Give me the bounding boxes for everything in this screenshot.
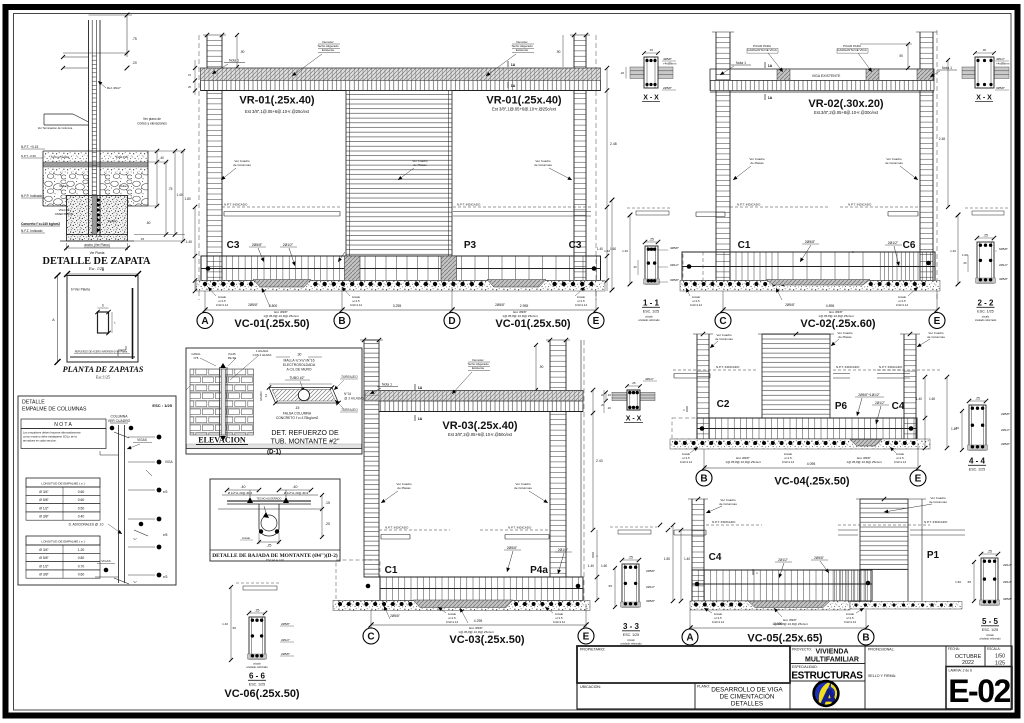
- svg-text:2Ø5/8"+1Ø1/2": 2Ø5/8"+1Ø1/2": [858, 393, 880, 397]
- svg-text:C6: C6: [903, 240, 916, 251]
- svg-text:.25: .25: [649, 238, 654, 242]
- svg-text:C/H=1.12: C/H=1.12: [894, 460, 907, 464]
- svg-text:1/25: 1/25: [995, 661, 1005, 667]
- svg-text:CON 2 HLDAS: CON 2 HLDAS: [253, 353, 272, 357]
- svg-text:VIGA: VIGA: [165, 460, 173, 464]
- svg-text:ELECTROSOLDADA: ELECTROSOLDADA: [283, 363, 316, 367]
- svg-text:D. ADICIONALES @ .10: D. ADICIONALES @ .10: [69, 523, 104, 527]
- svg-text:Existente: Existente: [472, 366, 485, 370]
- svg-text:EMPALME DE COLUMNAS: EMPALME DE COLUMNAS: [22, 407, 87, 413]
- svg-text:N.P.T. INDICADO: N.P.T. INDICADO: [737, 203, 761, 207]
- svg-text:Relleno: Relleno: [119, 184, 129, 188]
- svg-text:3Ø5/8": 3Ø5/8": [996, 86, 1005, 90]
- svg-text:Ø 1/2"x1.20@.40ml: Ø 1/2"x1.20@.40ml: [284, 491, 309, 495]
- svg-text:VC-01(.25x.50): VC-01(.25x.50): [234, 318, 310, 330]
- svg-text:C1: C1: [738, 240, 751, 251]
- svg-text:X - X: X - X: [626, 416, 642, 423]
- svg-text:t: t: [115, 321, 116, 325]
- svg-text:2022: 2022: [962, 660, 974, 666]
- svg-text:C3: C3: [227, 240, 240, 251]
- svg-text:"e": "e": [133, 580, 137, 584]
- svg-text:B: B: [862, 633, 869, 644]
- svg-text:N.P.T. -0.60: N.P.T. -0.60: [21, 154, 36, 158]
- svg-text:1A: 1A: [511, 63, 516, 67]
- svg-text:de Columnas: de Columnas: [534, 163, 552, 167]
- svg-text:@ 3 HILADAS: @ 3 HILADAS: [344, 397, 365, 401]
- svg-text:0.80: 0.80: [78, 556, 85, 560]
- svg-text:Falso Piso: Falso Piso: [116, 155, 129, 159]
- svg-text:2Ø5/8": 2Ø5/8": [663, 86, 672, 90]
- svg-text:PLANTA DE ZAPATAS: PLANTA DE ZAPATAS: [63, 365, 144, 374]
- svg-text:0.70: 0.70: [78, 564, 85, 568]
- svg-text:Relleno: Relleno: [59, 184, 69, 188]
- svg-text:1.40: 1.40: [177, 193, 183, 197]
- svg-text:.20: .20: [607, 393, 611, 397]
- svg-text:Zapata: Zapata: [108, 219, 117, 223]
- svg-text:+4xØ8mm: +4xØ8mm: [996, 62, 1010, 66]
- svg-text:VR-02(.30x.20): VR-02(.30x.20): [808, 98, 884, 110]
- svg-text:de Columnas: de Columnas: [233, 163, 251, 167]
- svg-text:ELEVACION: ELEVACION: [198, 436, 246, 445]
- svg-text:0.60: 0.60: [78, 490, 85, 494]
- svg-text:DET. REFUERZO DE: DET. REFUERZO DE: [271, 430, 339, 437]
- svg-text:b=Ver Planta: b=Ver Planta: [71, 288, 90, 292]
- svg-text:.30: .30: [297, 353, 302, 357]
- svg-text:2Ø1/2": 2Ø1/2": [1003, 580, 1012, 584]
- svg-text:c/solado reforzado: c/solado reforzado: [979, 637, 1001, 641]
- svg-text:zócalo: zócalo: [627, 638, 635, 642]
- svg-text:C/H=1.12: C/H=1.12: [553, 620, 566, 624]
- svg-text:de Placas: de Placas: [413, 163, 427, 167]
- svg-text:1A: 1A: [418, 386, 423, 390]
- svg-text:DETALLES: DETALLES: [731, 701, 763, 708]
- svg-text:DE CIMENTACIÓN: DE CIMENTACIÓN: [720, 692, 775, 701]
- svg-text:Ø 3/4": Ø 3/4": [39, 548, 49, 552]
- svg-text:0.60: 0.60: [78, 498, 85, 502]
- svg-text:.40: .40: [160, 156, 165, 160]
- svg-text:.20: .20: [325, 522, 330, 526]
- svg-text:0.50: 0.50: [78, 506, 85, 510]
- svg-text:.90: .90: [240, 50, 245, 54]
- svg-text:.25: .25: [267, 544, 272, 548]
- svg-text:VR-01(.25x.40): VR-01(.25x.40): [239, 95, 315, 107]
- svg-text:N.P.T. INDICADO: N.P.T. INDICADO: [712, 520, 736, 524]
- svg-text:.90: .90: [899, 54, 904, 58]
- svg-text:TECHO ALIGERADO: TECHO ALIGERADO: [257, 497, 282, 501]
- svg-text:2Ø5/8": 2Ø5/8": [814, 556, 824, 560]
- svg-text:1 - 1: 1 - 1: [643, 299, 660, 308]
- svg-text:B: B: [338, 316, 345, 327]
- svg-text:de Columnas: de Columnas: [929, 500, 947, 504]
- svg-text:2Ø1/2": 2Ø1/2": [1003, 563, 1012, 567]
- svg-text:2Ø1/2": 2Ø1/2": [281, 638, 290, 642]
- svg-text:de Columnas: de Columnas: [514, 486, 532, 490]
- svg-text:1A: 1A: [768, 64, 773, 68]
- svg-text:2Ø5/8": 2Ø5/8": [1001, 442, 1010, 446]
- svg-text:1.60: 1.60: [929, 397, 935, 401]
- svg-text:2Ø5/8": 2Ø5/8": [248, 303, 258, 307]
- svg-text:VC-02(.25x.60): VC-02(.25x.60): [800, 318, 876, 330]
- svg-text:2Ø5/8": 2Ø5/8": [785, 303, 795, 307]
- svg-text:de Columnas: de Columnas: [885, 161, 903, 165]
- svg-text:ESC. 1/25: ESC. 1/25: [623, 633, 639, 637]
- svg-text:VC-05(.25x.65): VC-05(.25x.65): [747, 633, 823, 645]
- svg-text:4.895: 4.895: [826, 304, 835, 308]
- svg-text:2Ø5/8": 2Ø5/8": [390, 614, 400, 618]
- svg-text:.13: .13: [264, 394, 268, 398]
- svg-text:de Columnas: de Columnas: [927, 335, 945, 339]
- svg-text:TARRAJEO: TARRAJEO: [341, 375, 358, 379]
- svg-text:zócalo: zócalo: [986, 633, 994, 637]
- svg-text:2.955: 2.955: [520, 304, 529, 308]
- svg-text:armadura en cada seccion.: armadura en cada seccion.: [23, 438, 57, 442]
- svg-text:Nota 1: Nota 1: [942, 66, 952, 70]
- svg-text:N.P.T. INDICADO: N.P.T. INDICADO: [457, 203, 481, 207]
- svg-text:N°16: N°16: [344, 392, 351, 396]
- svg-text:VIGAS: VIGAS: [137, 438, 147, 442]
- svg-text:2Ø5/8": 2Ø5/8": [281, 652, 290, 656]
- svg-text:VER CUADRO: VER CUADRO: [108, 419, 131, 423]
- svg-text:2Ø1/2": 2Ø1/2": [670, 263, 679, 267]
- svg-text:2.48: 2.48: [610, 142, 617, 146]
- svg-text:N.F.Z. Indicado: N.F.Z. Indicado: [21, 229, 43, 233]
- svg-text:N.P.T. INDICADO: N.P.T. INDICADO: [508, 526, 532, 530]
- svg-text:.60: .60: [146, 221, 151, 225]
- svg-text:"e": "e": [133, 537, 137, 541]
- svg-text:2Ø1/2": 2Ø1/2": [558, 548, 569, 552]
- svg-text:.25: .25: [631, 381, 636, 385]
- svg-text:.15: .15: [325, 501, 330, 505]
- svg-text:N.F.P. Indicado: N.F.P. Indicado: [21, 194, 42, 198]
- svg-text:PROFESIONAL:: PROFESIONAL:: [868, 648, 895, 652]
- svg-text:3Ø5/8": 3Ø5/8": [646, 599, 655, 603]
- svg-text:VR-01(.25x.40): VR-01(.25x.40): [486, 95, 562, 107]
- svg-text:2Ø5/8": 2Ø5/8": [646, 569, 655, 573]
- svg-text:2Ø5/8": 2Ø5/8": [495, 303, 505, 307]
- svg-text:4Ø1/2": 4Ø1/2": [996, 57, 1005, 61]
- svg-text:N.P.T. INDICADO: N.P.T. INDICADO: [836, 365, 860, 369]
- svg-text:Esc:1/25: Esc:1/25: [96, 375, 110, 380]
- svg-text:Ø 1/2"x1.20@.40ml: Ø 1/2"x1.20@.40ml: [228, 491, 253, 495]
- svg-text:1.40: 1.40: [622, 249, 628, 253]
- svg-text:Ø 5/8": Ø 5/8": [39, 498, 49, 502]
- svg-text:(D-1): (D-1): [267, 449, 281, 456]
- svg-text:C/H=1.12: C/H=1.12: [690, 303, 703, 307]
- svg-text:MURO: MURO: [259, 391, 263, 401]
- svg-text:.60: .60: [955, 426, 960, 430]
- svg-text:C2: C2: [717, 399, 730, 410]
- svg-text:.40: .40: [241, 485, 246, 489]
- svg-text:de Placas: de Placas: [838, 335, 852, 339]
- svg-text:Ø 3/4": Ø 3/4": [39, 490, 49, 494]
- svg-text:A: A: [686, 633, 693, 644]
- svg-text:2Ø1/2": 2Ø1/2": [875, 401, 885, 405]
- svg-text:FALSA COLUMNA: FALSA COLUMNA: [283, 412, 312, 416]
- svg-text:REFUERZO DE ACERO INFERIOR Ø V: REFUERZO DE ACERO INFERIOR Ø Ver Planta: [75, 351, 128, 354]
- svg-text:.65: .65: [967, 580, 972, 584]
- svg-text:C/H=1.12: C/H=1.12: [782, 460, 795, 464]
- svg-text:.15: .15: [295, 406, 300, 410]
- svg-text:N.P.T. INDICADO: N.P.T. INDICADO: [848, 203, 872, 207]
- svg-text:N.P.T. INDICADO: N.P.T. INDICADO: [924, 520, 948, 524]
- svg-text:Existente: Existente: [516, 48, 529, 52]
- svg-text:VC-06(.25x.50): VC-06(.25x.50): [224, 688, 300, 700]
- svg-text:2Ø1/2": 2Ø1/2": [888, 241, 899, 245]
- svg-text:1.40: 1.40: [684, 557, 690, 561]
- svg-text:VC-04(.25x.50): VC-04(.25x.50): [774, 476, 850, 488]
- svg-text:3.800: 3.800: [269, 304, 278, 308]
- svg-text:1.40: 1.40: [222, 622, 228, 626]
- svg-text:.75: .75: [132, 37, 137, 41]
- svg-text:1.40: 1.40: [588, 564, 594, 568]
- svg-text:C/H=1.12: C/H=1.12: [446, 620, 459, 624]
- svg-text:E: E: [593, 316, 600, 327]
- svg-text:Concreto f`c=140 kg/cm2: Concreto f`c=140 kg/cm2: [21, 222, 60, 226]
- svg-text:1.40: 1.40: [916, 397, 922, 401]
- svg-text:b: b: [102, 304, 104, 308]
- svg-text:2Ø1/2": 2Ø1/2": [283, 243, 294, 247]
- svg-text:.60: .60: [963, 261, 967, 265]
- svg-text:LONGITUD DE EMPALME ( e ): LONGITUD DE EMPALME ( e ): [41, 482, 84, 486]
- svg-text:3.405: 3.405: [774, 622, 783, 626]
- svg-text:6Ø5/8": 6Ø5/8": [999, 247, 1008, 251]
- svg-text:de Placas: de Placas: [397, 486, 411, 490]
- svg-text:3Ø5/8": 3Ø5/8": [1003, 597, 1012, 601]
- svg-text:Ø 1/2": Ø 1/2": [39, 564, 49, 568]
- svg-text:P3: P3: [464, 240, 477, 251]
- svg-text:4.295: 4.295: [474, 619, 483, 623]
- svg-text:2Ø5/8": 2Ø5/8": [507, 546, 518, 550]
- svg-text:Existente: Existente: [322, 48, 335, 52]
- svg-text:LONGITUD DE EMPALME ( e ): LONGITUD DE EMPALME ( e ): [41, 540, 84, 544]
- svg-text:2.43: 2.43: [596, 459, 603, 463]
- svg-text:3Ø5/8": 3Ø5/8": [999, 277, 1008, 281]
- svg-text:N.P.T. INDICADO: N.P.T. INDICADO: [224, 203, 248, 207]
- svg-text:2Ø5/8": 2Ø5/8": [281, 622, 290, 626]
- svg-text:Nota 1: Nota 1: [229, 59, 239, 63]
- svg-text:VC-01(.25x.50): VC-01(.25x.50): [495, 318, 571, 330]
- svg-text:1A: 1A: [511, 84, 516, 88]
- svg-text:.20: .20: [607, 406, 611, 410]
- svg-text:C/H=1.12: C/H=1.12: [680, 460, 693, 464]
- svg-text:.25: .25: [255, 609, 260, 613]
- svg-text:4.095: 4.095: [807, 462, 816, 466]
- svg-text:3.255: 3.255: [393, 304, 402, 308]
- svg-text:ESCALA:: ESCALA:: [987, 647, 1001, 651]
- svg-text:2Ø5/8": 2Ø5/8": [1001, 412, 1010, 416]
- svg-text:4Ø1/2": 4Ø1/2": [645, 377, 654, 381]
- svg-text:Est.3/8",2@.05+8@.10+r.@30c/ex: Est.3/8",2@.05+8@.10+r.@30c/ext: [814, 110, 879, 115]
- svg-text:PROYECTO:: PROYECTO:: [792, 648, 812, 652]
- svg-text:3Ø5/8": 3Ø5/8": [670, 278, 679, 282]
- svg-text:1A: 1A: [418, 417, 423, 421]
- svg-text:1.40: 1.40: [185, 240, 192, 244]
- svg-text:ESC. 1/25: ESC. 1/25: [643, 310, 659, 314]
- svg-text:ESPECIALIDAD:: ESPECIALIDAD:: [792, 665, 818, 669]
- svg-text:1.20: 1.20: [78, 548, 85, 552]
- svg-text:Terreno Natural: Terreno Natural: [51, 155, 70, 159]
- svg-text:.90: .90: [556, 50, 561, 54]
- svg-text:1@.05,8@.10,R@.25c/ext: 1@.05,8@.10,R@.25c/ext: [846, 460, 881, 464]
- svg-text:UBICACION:: UBICACION:: [580, 685, 601, 689]
- svg-text:ESC. 1/25: ESC. 1/25: [249, 683, 265, 687]
- svg-text:Ver Planta: Ver Planta: [90, 251, 105, 255]
- svg-text:C1: C1: [385, 565, 398, 576]
- svg-text:C/H=1.12: C/H=1.12: [844, 620, 857, 624]
- svg-text:1@.05,8@.10,R@.25c/ext: 1@.05,8@.10,R@.25c/ext: [725, 460, 760, 464]
- svg-text:N.P.T. +0.15: N.P.T. +0.15: [21, 145, 38, 149]
- svg-text:de Placas: de Placas: [750, 161, 764, 165]
- svg-text:Cortes y elevaciones: Cortes y elevaciones: [137, 121, 167, 125]
- svg-text:CONCRETO f`c=175kg/cm2: CONCRETO f`c=175kg/cm2: [276, 416, 319, 420]
- svg-text:Ø 5/8": Ø 5/8": [39, 556, 49, 560]
- svg-text:Est 3/8",2@.05+6@.10+r.@50c/ex: Est 3/8",2@.05+6@.10+r.@50c/ext: [448, 432, 513, 437]
- svg-text:C4: C4: [709, 552, 722, 563]
- svg-text:ESCALA 1/10: ESCALA 1/10: [266, 558, 284, 562]
- svg-text:Ø 1/2": Ø 1/2": [39, 506, 49, 510]
- svg-text:N O T A: N O T A: [54, 422, 72, 428]
- svg-text:Ver Terminacion de Columna: Ver Terminacion de Columna: [38, 126, 73, 130]
- svg-text:+4xØ8mm: +4xØ8mm: [663, 62, 677, 66]
- svg-text:Est 3/8",1@.05+6@.10+r.@25c/ex: Est 3/8",1@.05+6@.10+r.@25c/ext: [245, 109, 310, 114]
- svg-text:.30: .30: [633, 265, 637, 269]
- svg-text:C/H=1.12: C/H=1.12: [350, 303, 363, 307]
- svg-text:N.P.T. INDICADO: N.P.T. INDICADO: [716, 365, 740, 369]
- svg-text:Ø 3/8": Ø 3/8": [39, 515, 49, 519]
- svg-text:C/H=1.12: C/H=1.12: [896, 303, 909, 307]
- svg-text:1.60: 1.60: [955, 580, 961, 584]
- svg-text:C/H=1.12: C/H=1.12: [712, 620, 725, 624]
- svg-text:ESC. 1/25: ESC. 1/25: [969, 468, 985, 472]
- svg-text:A C/L DE MURO: A C/L DE MURO: [286, 368, 311, 372]
- svg-text:PLANO:: PLANO:: [697, 685, 710, 689]
- svg-text:B: B: [700, 474, 707, 485]
- svg-text:MALLA ¾"x¾"xN°16: MALLA ¾"x¾"xN°16: [284, 359, 315, 363]
- svg-text:TUBO #2": TUBO #2": [289, 376, 305, 380]
- svg-text:A: A: [201, 316, 208, 327]
- svg-text:X - X: X - X: [976, 95, 992, 102]
- svg-text:TUB. MONTANTE #2": TUB. MONTANTE #2": [271, 439, 340, 446]
- svg-text:zócalo: zócalo: [645, 315, 653, 319]
- svg-text:.25: .25: [628, 556, 633, 560]
- svg-text:1.40: 1.40: [597, 247, 603, 251]
- svg-text:.25: .25: [987, 550, 992, 554]
- svg-text:SELLO Y FIRMA:: SELLO Y FIRMA:: [868, 674, 896, 678]
- svg-text:1.60: 1.60: [962, 253, 968, 257]
- svg-text:zócalo: zócalo: [253, 662, 261, 666]
- svg-text:4Ø5/8": 4Ø5/8": [663, 57, 672, 61]
- svg-text:VR-03(.25x.40): VR-03(.25x.40): [442, 420, 518, 432]
- svg-text:VIGA EXISTENTE: VIGA EXISTENTE: [812, 74, 841, 78]
- svg-text:2.48: 2.48: [939, 137, 945, 141]
- svg-text:ESC. 1/25: ESC. 1/25: [977, 310, 993, 314]
- svg-text:P4a: P4a: [530, 565, 548, 576]
- svg-text:C: C: [719, 316, 726, 327]
- svg-text:Nota 1: Nota 1: [736, 61, 746, 65]
- svg-text:2Ø1/2": 2Ø1/2": [999, 263, 1008, 267]
- svg-text:P1: P1: [927, 550, 940, 561]
- svg-text:Ø 3/8": Ø 3/8": [39, 573, 49, 577]
- svg-text:DETALLE: DETALLE: [22, 400, 45, 406]
- svg-text:3 - 3: 3 - 3: [623, 622, 640, 631]
- svg-text:c/solado reforzado: c/solado reforzado: [975, 318, 997, 322]
- svg-text:GARGANTA DE VIGA: GARGANTA DE VIGA: [747, 48, 776, 52]
- svg-text:N.P.T. INDICADO: N.P.T. INDICADO: [385, 526, 409, 530]
- svg-text:de Columnas: de Columnas: [719, 502, 737, 506]
- svg-text:CIMENTACION: CIMENTACION: [55, 212, 74, 216]
- svg-text:PE-SK: PE-SK: [228, 356, 237, 360]
- svg-text:VC-03(.25x.50): VC-03(.25x.50): [449, 634, 525, 646]
- svg-text:E: E: [583, 632, 590, 643]
- svg-text:zócalo: zócalo: [242, 536, 251, 540]
- svg-text:C4: C4: [892, 401, 905, 412]
- svg-text:D: D: [448, 316, 455, 327]
- svg-text:.20: .20: [132, 61, 137, 65]
- svg-text:1A: 1A: [768, 96, 773, 100]
- svg-text:C: C: [367, 632, 374, 643]
- svg-text:2 - 2: 2 - 2: [977, 299, 994, 308]
- svg-text:.30: .30: [982, 48, 987, 52]
- svg-text:.25: .25: [983, 234, 988, 238]
- svg-text:.15: .15: [649, 48, 654, 52]
- svg-text:2Ø1/2": 2Ø1/2": [646, 585, 655, 589]
- svg-text:C/H=1.12: C/H=1.12: [575, 303, 588, 307]
- svg-text:.90: .90: [539, 365, 544, 369]
- svg-text:ancho (Ver Plano): ancho (Ver Plano): [84, 243, 110, 247]
- svg-text:c/solado reforzado: c/solado reforzado: [638, 318, 660, 322]
- svg-text:1.80: 1.80: [185, 197, 191, 201]
- svg-text:X - X: X - X: [643, 95, 659, 102]
- svg-text:e/5: e/5: [163, 533, 168, 537]
- svg-text:2Ø5/8": 2Ø5/8": [805, 240, 816, 244]
- svg-text:E-02: E-02: [948, 673, 1010, 709]
- svg-text:5 - 5: 5 - 5: [982, 617, 999, 626]
- svg-text:.40: .40: [293, 485, 298, 489]
- svg-text:.50: .50: [232, 626, 237, 630]
- svg-text:.75: .75: [168, 187, 173, 191]
- svg-text:MULTIFAMILIAR: MULTIFAMILIAR: [805, 657, 859, 664]
- svg-text:C3: C3: [569, 240, 582, 251]
- svg-text:2Ø1/2": 2Ø1/2": [1001, 428, 1010, 432]
- svg-text:1.40: 1.40: [950, 249, 956, 253]
- svg-text:Est 3/8",1@.05+6@.10+r.@25c/ex: Est 3/8",1@.05+6@.10+r.@25c/ext: [492, 107, 557, 112]
- svg-text:e/3: e/3: [163, 490, 168, 494]
- svg-text:LAMINA: 2 de 6: LAMINA: 2 de 6: [949, 669, 972, 673]
- svg-text:1/50: 1/50: [995, 654, 1005, 660]
- svg-text:Ref. Ø1/2": Ref. Ø1/2": [107, 86, 121, 90]
- svg-text:N°8: N°8: [194, 356, 199, 360]
- svg-text:PROPIETARIO:: PROPIETARIO:: [580, 648, 605, 652]
- svg-text:ESC : 1/25: ESC : 1/25: [152, 403, 172, 408]
- svg-text:6 - 6: 6 - 6: [249, 672, 266, 681]
- svg-text:1.60: 1.60: [604, 249, 610, 253]
- svg-text:ESC. 1/25: ESC. 1/25: [982, 628, 998, 632]
- svg-text:FECHA:: FECHA:: [948, 647, 960, 651]
- svg-text:.65: .65: [608, 584, 613, 588]
- svg-text:N.P.T. INDICADO: N.P.T. INDICADO: [879, 365, 903, 369]
- svg-text:.15: .15: [140, 237, 145, 241]
- svg-text:0.40: 0.40: [78, 515, 85, 519]
- svg-text:4Ø5/8": 4Ø5/8": [670, 246, 679, 250]
- svg-text:Nota 1: Nota 1: [382, 383, 392, 387]
- svg-text:1.80: 1.80: [664, 557, 670, 561]
- svg-text:2Ø5/8": 2Ø5/8": [252, 243, 263, 247]
- svg-text:zócalo: zócalo: [982, 315, 990, 319]
- svg-text:4 - 4: 4 - 4: [969, 457, 986, 466]
- svg-text:DESARROLLO DE VIGA: DESARROLLO DE VIGA: [711, 687, 783, 694]
- svg-text:VIGA DE: VIGA DE: [59, 208, 70, 212]
- svg-text:P6: P6: [835, 401, 848, 412]
